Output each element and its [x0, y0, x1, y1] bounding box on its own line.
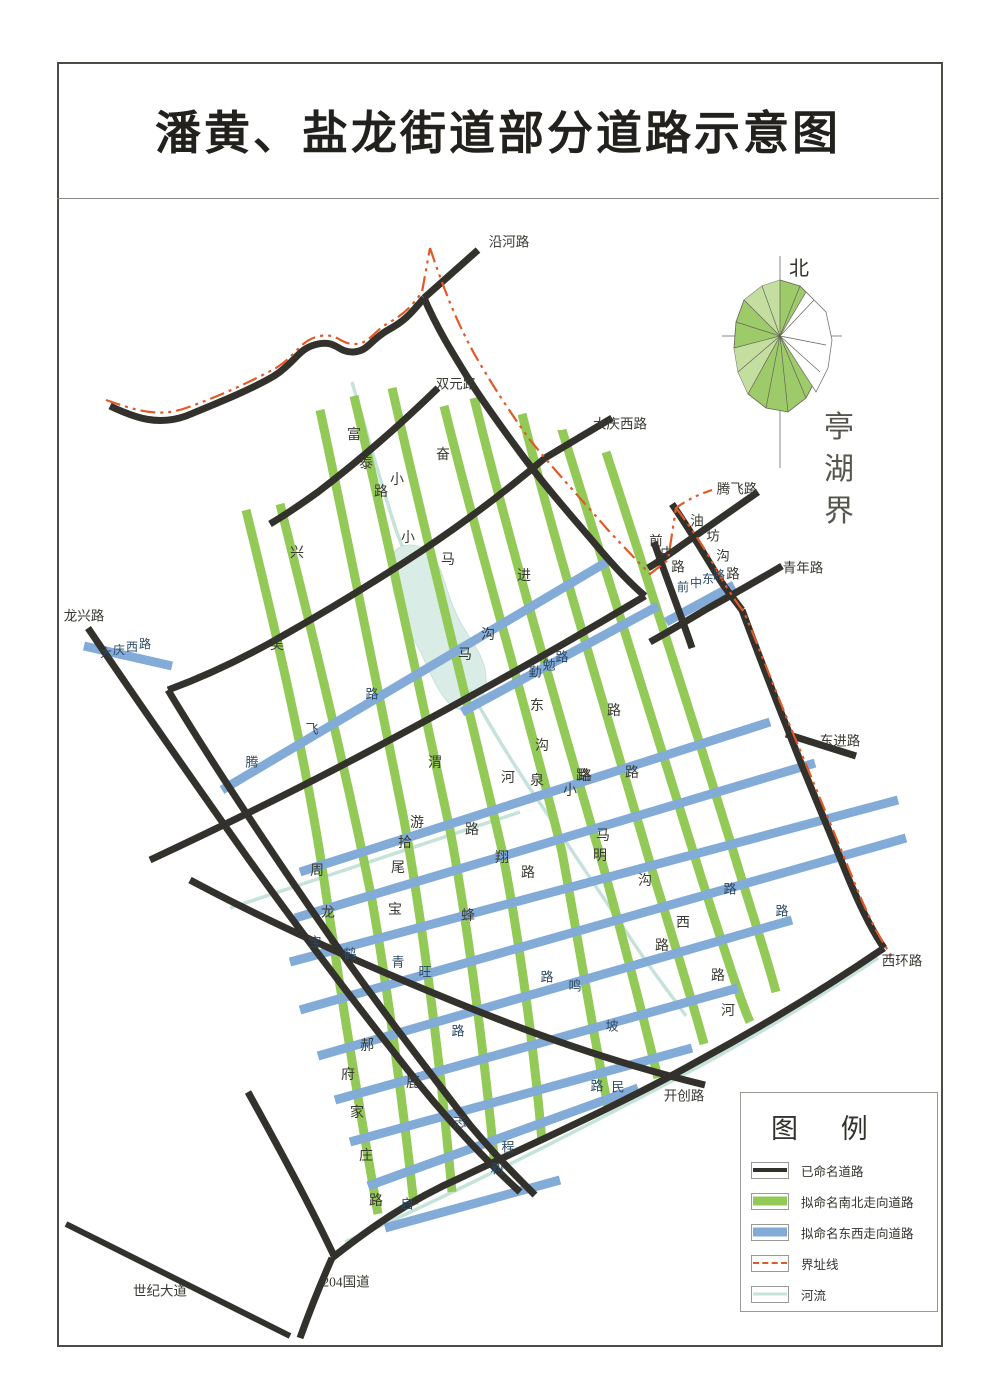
legend-swatch-river: [751, 1286, 789, 1303]
legend-item-ew: 拟命名东西走向道路: [751, 1222, 937, 1242]
legend-item-named: 已命名道路: [751, 1160, 937, 1180]
legend-rows: 已命名道路拟命名南北走向道路拟命名东西走向道路界址线河流: [751, 1160, 937, 1304]
compass: [722, 256, 842, 468]
legend-label: 拟命名南北走向道路: [801, 1192, 914, 1211]
map-sheet: 潘黄、盐龙街道部分道路示意图: [0, 0, 1000, 1400]
north-label: 北: [789, 252, 809, 281]
legend-label: 界址线: [801, 1254, 839, 1273]
legend-item-river: 河流: [751, 1284, 937, 1304]
legend-label: 拟命名东西走向道路: [801, 1223, 914, 1242]
legend-label: 河流: [801, 1285, 826, 1304]
legend-swatch-named: [751, 1162, 789, 1179]
legend-swatch-boundary: [751, 1255, 789, 1272]
legend-swatch-ns: [751, 1193, 789, 1210]
legend-item-ns: 拟命名南北走向道路: [751, 1191, 937, 1211]
legend: 图 例 已命名道路拟命名南北走向道路拟命名东西走向道路界址线河流: [740, 1092, 938, 1312]
legend-item-boundary: 界址线: [751, 1253, 937, 1273]
legend-label: 已命名道路: [801, 1161, 864, 1180]
legend-swatch-ew: [751, 1224, 789, 1241]
legend-title: 图 例: [771, 1107, 937, 1146]
